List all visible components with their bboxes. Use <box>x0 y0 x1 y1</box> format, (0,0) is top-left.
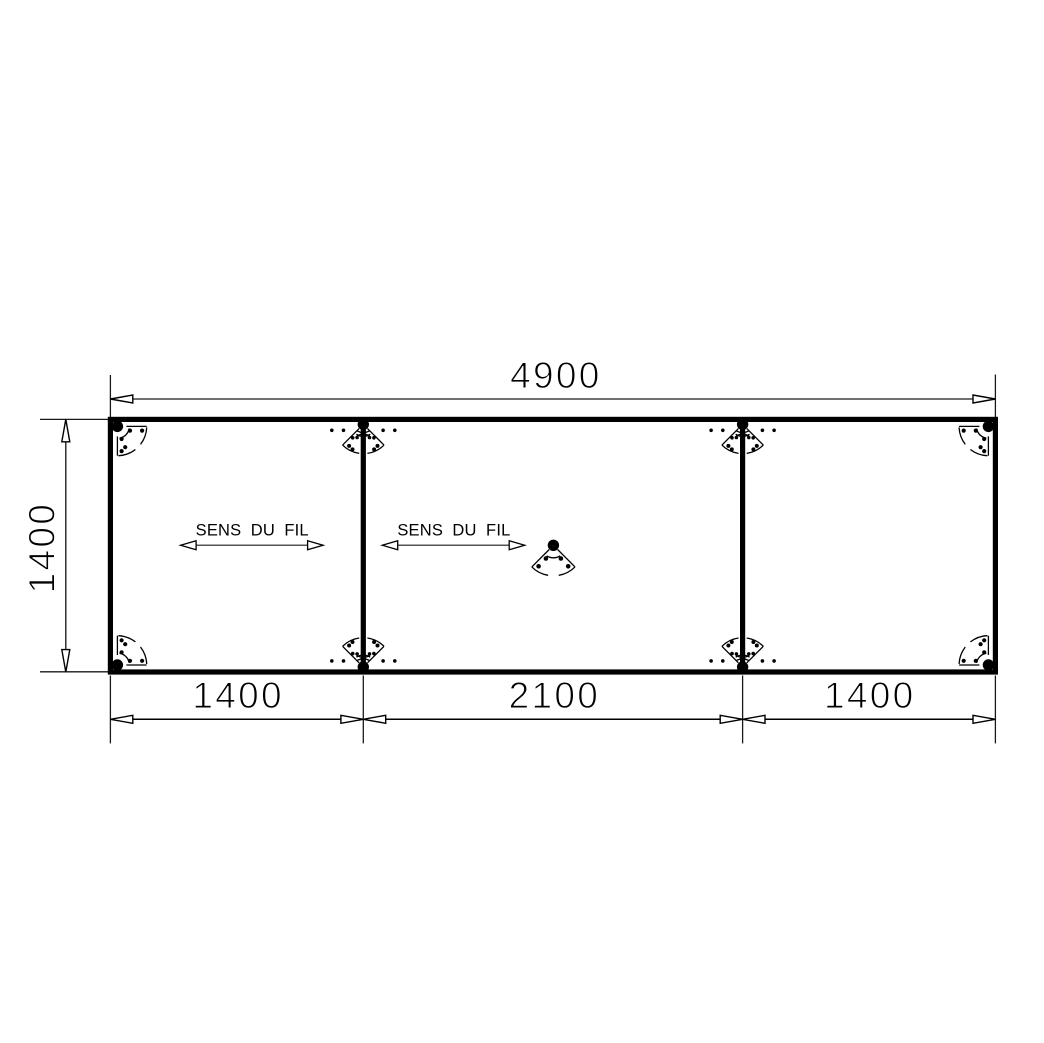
svg-text:SENS DU FIL: SENS DU FIL <box>397 522 510 540</box>
svg-text:1400: 1400 <box>824 675 916 716</box>
svg-text:1400: 1400 <box>21 502 62 594</box>
svg-text:SENS DU FIL: SENS DU FIL <box>196 522 309 540</box>
svg-text:1400: 1400 <box>192 675 284 716</box>
svg-text:2100: 2100 <box>509 675 601 716</box>
svg-text:4900: 4900 <box>510 355 602 396</box>
